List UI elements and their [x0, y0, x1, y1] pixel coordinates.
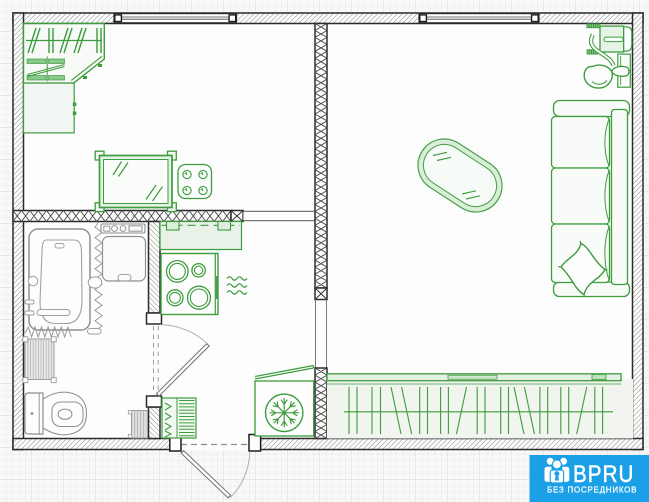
svg-text:БЕЗ ПОСРЕДНИКОВ: БЕЗ ПОСРЕДНИКОВ — [547, 485, 637, 494]
svg-text:BPRU: BPRU — [573, 461, 635, 488]
